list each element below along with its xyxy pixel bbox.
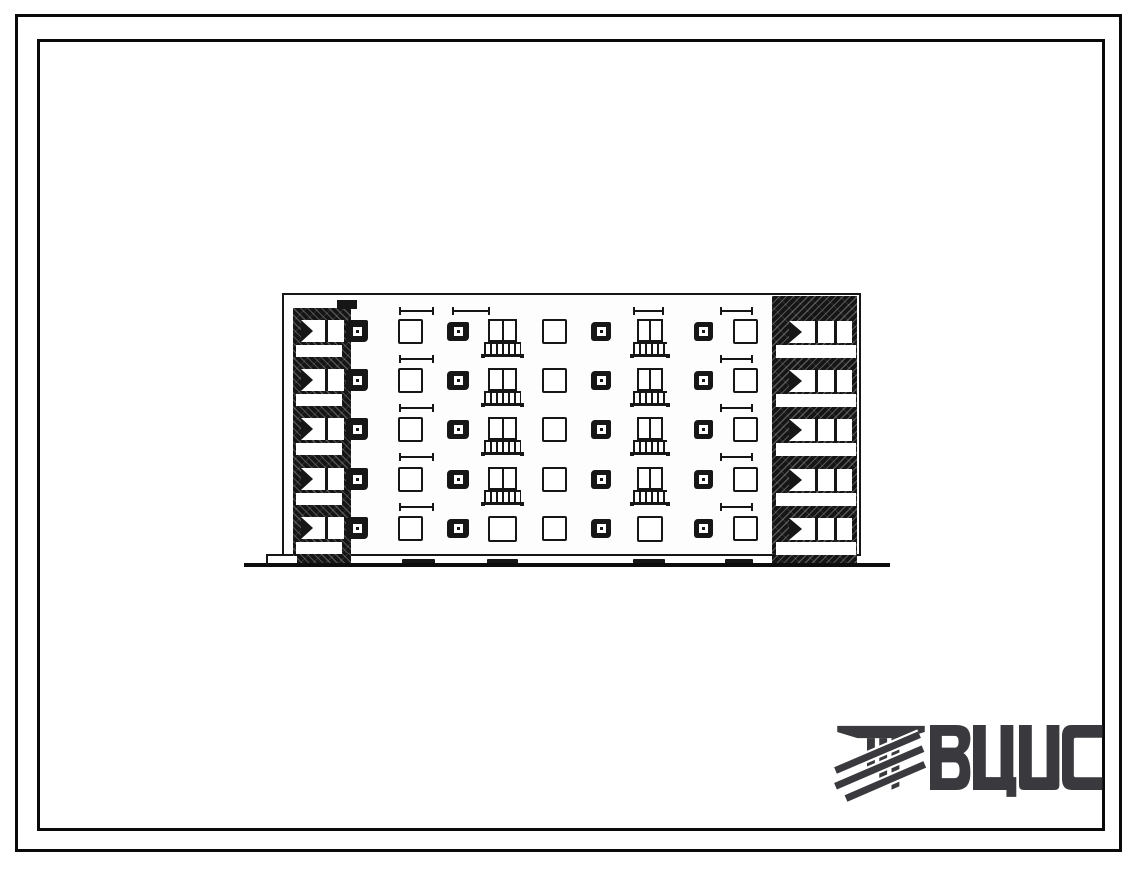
- rail-tick: [399, 355, 434, 363]
- loggia-window-wedge: [301, 468, 313, 490]
- ground-line: [244, 563, 890, 567]
- french-balcony-railing: [633, 342, 667, 357]
- window-french: [637, 368, 663, 391]
- logo-letter: [930, 725, 970, 790]
- rail-tick: [720, 307, 753, 315]
- vcis-logo-emblem-icon: [836, 725, 926, 795]
- small-window-sash: [457, 527, 460, 530]
- small-window-sash: [356, 379, 359, 382]
- rail-tick: [720, 453, 753, 461]
- loggia-window-wedge: [789, 469, 802, 491]
- window-french: [488, 417, 517, 440]
- stair-window: [346, 517, 368, 539]
- window-small: [447, 519, 469, 538]
- small-window-sash: [702, 428, 705, 431]
- loggia-window-mullion: [325, 369, 328, 391]
- small-window-sash: [600, 527, 603, 530]
- right-loggia-floor-slab: [776, 542, 856, 555]
- rail-tick: [720, 355, 753, 363]
- wall-base-step: [266, 554, 284, 556]
- french-balcony-railing: [484, 391, 521, 406]
- left-loggia-window: [301, 418, 344, 440]
- window-small: [591, 371, 611, 390]
- french-balcony-railing: [484, 342, 521, 357]
- window-small: [447, 470, 469, 489]
- french-balcony-railing: [633, 490, 667, 505]
- french-window-mullion: [649, 370, 651, 389]
- small-window-sash: [600, 379, 603, 382]
- left-loggia-floor-slab: [296, 345, 342, 357]
- stair-window: [346, 468, 368, 490]
- left-loggia-floor-slab: [296, 542, 342, 554]
- rail-tick: [399, 404, 434, 412]
- window-small: [447, 420, 469, 439]
- loggia-window-wedge: [301, 418, 313, 440]
- loggia-window-mullion: [815, 370, 818, 392]
- rail-tick: [399, 307, 434, 315]
- rail-tick: [720, 404, 753, 412]
- window-plain: [542, 417, 567, 442]
- loggia-window-mullion: [834, 370, 837, 392]
- french-balcony-railing: [484, 440, 521, 455]
- loggia-window-wedge: [301, 320, 313, 342]
- left-loggia-parapet-nub: [337, 300, 357, 309]
- small-window-sash: [600, 478, 603, 481]
- small-window-sash: [457, 379, 460, 382]
- french-window-mullion: [649, 469, 651, 488]
- window-plain: [733, 319, 758, 344]
- window-small: [694, 470, 713, 489]
- window-french: [488, 368, 517, 391]
- window-plain: [398, 417, 423, 442]
- right-loggia-floor-slab: [776, 493, 856, 506]
- loggia-window-mullion: [815, 469, 818, 491]
- left-loggia-window: [301, 468, 344, 490]
- scanned-drawing-sheet: ВЦИС: [0, 0, 1139, 869]
- left-loggia-floor-slab: [296, 394, 342, 406]
- window-plain: [733, 417, 758, 442]
- rail-tick: [452, 307, 490, 315]
- loggia-window-mullion: [815, 419, 818, 441]
- small-window-sash: [356, 527, 359, 530]
- left-loggia-floor-slab: [296, 443, 342, 455]
- french-window-mullion: [502, 419, 504, 438]
- small-window-sash: [702, 330, 705, 333]
- loggia-window-mullion: [325, 418, 328, 440]
- loggia-window-mullion: [325, 468, 328, 490]
- loggia-window-wedge: [789, 419, 802, 441]
- rail-tick: [720, 503, 753, 511]
- window-small: [591, 519, 611, 538]
- stair-window: [346, 418, 368, 440]
- french-balcony-railing: [633, 391, 667, 406]
- window-plain: [542, 467, 567, 492]
- window-plain: [542, 368, 567, 393]
- small-window-sash: [702, 379, 705, 382]
- window-french: [488, 467, 517, 490]
- right-loggia-floor-slab: [776, 443, 856, 456]
- window-plain: [398, 467, 423, 492]
- loggia-window-mullion: [834, 419, 837, 441]
- window-plain: [637, 516, 663, 542]
- small-window-sash: [457, 478, 460, 481]
- wall-base-step: [266, 554, 268, 565]
- french-window-mullion: [502, 370, 504, 389]
- french-balcony-railing: [633, 440, 667, 455]
- left-loggia-floor-slab: [296, 493, 342, 505]
- french-window-mullion: [502, 321, 504, 340]
- loggia-window-mullion: [325, 517, 328, 539]
- left-loggia-window: [301, 517, 344, 539]
- logo-letter: [973, 725, 1016, 797]
- window-plain: [733, 368, 758, 393]
- window-french: [637, 417, 663, 440]
- window-french: [488, 319, 517, 342]
- window-small: [694, 322, 713, 341]
- small-window-sash: [356, 478, 359, 481]
- small-window-sash: [356, 330, 359, 333]
- french-balcony-railing: [484, 490, 521, 505]
- window-plain: [398, 368, 423, 393]
- window-small: [694, 420, 713, 439]
- rail-tick: [399, 453, 434, 461]
- loggia-window-mullion: [834, 469, 837, 491]
- rail-tick: [399, 503, 434, 511]
- window-plain: [488, 516, 517, 542]
- window-plain: [398, 319, 423, 344]
- vcis-logo-text: [930, 725, 1102, 797]
- window-plain: [398, 516, 423, 541]
- loggia-window-wedge: [789, 321, 802, 343]
- window-small: [447, 322, 469, 341]
- vcis-logo: ВЦИС: [836, 725, 1102, 797]
- window-small: [591, 322, 611, 341]
- stair-window: [346, 320, 368, 342]
- logo-letter: [1019, 725, 1059, 790]
- window-plain: [542, 516, 567, 541]
- french-window-mullion: [649, 419, 651, 438]
- window-plain: [733, 516, 758, 541]
- right-loggia-window: [789, 518, 852, 540]
- left-loggia-window: [301, 369, 344, 391]
- small-window-sash: [356, 428, 359, 431]
- window-small: [591, 470, 611, 489]
- loggia-window-mullion: [815, 321, 818, 343]
- loggia-window-wedge: [789, 370, 802, 392]
- small-window-sash: [702, 478, 705, 481]
- small-window-sash: [457, 330, 460, 333]
- loggia-window-wedge: [301, 369, 313, 391]
- window-plain: [733, 467, 758, 492]
- window-french: [637, 319, 663, 342]
- right-loggia-window: [789, 370, 852, 392]
- right-loggia-window: [789, 419, 852, 441]
- right-loggia-floor-slab: [776, 394, 856, 407]
- right-loggia-floor-slab: [776, 345, 856, 358]
- window-small: [447, 371, 469, 390]
- loggia-window-wedge: [789, 518, 802, 540]
- loggia-window-mullion: [834, 518, 837, 540]
- french-window-mullion: [502, 469, 504, 488]
- right-loggia-window: [789, 469, 852, 491]
- window-french: [637, 467, 663, 490]
- rail-tick: [633, 307, 664, 315]
- loggia-window-mullion: [815, 518, 818, 540]
- loggia-window-mullion: [834, 321, 837, 343]
- window-plain: [542, 319, 567, 344]
- window-small: [694, 371, 713, 390]
- small-window-sash: [600, 330, 603, 333]
- loggia-window-mullion: [325, 320, 328, 342]
- left-loggia-window: [301, 320, 344, 342]
- small-window-sash: [457, 428, 460, 431]
- stair-window: [346, 369, 368, 391]
- window-small: [591, 420, 611, 439]
- small-window-sash: [702, 527, 705, 530]
- logo-letter: [1062, 725, 1102, 790]
- french-window-mullion: [649, 321, 651, 340]
- window-small: [694, 519, 713, 538]
- right-loggia-window: [789, 321, 852, 343]
- small-window-sash: [600, 428, 603, 431]
- loggia-window-wedge: [301, 517, 313, 539]
